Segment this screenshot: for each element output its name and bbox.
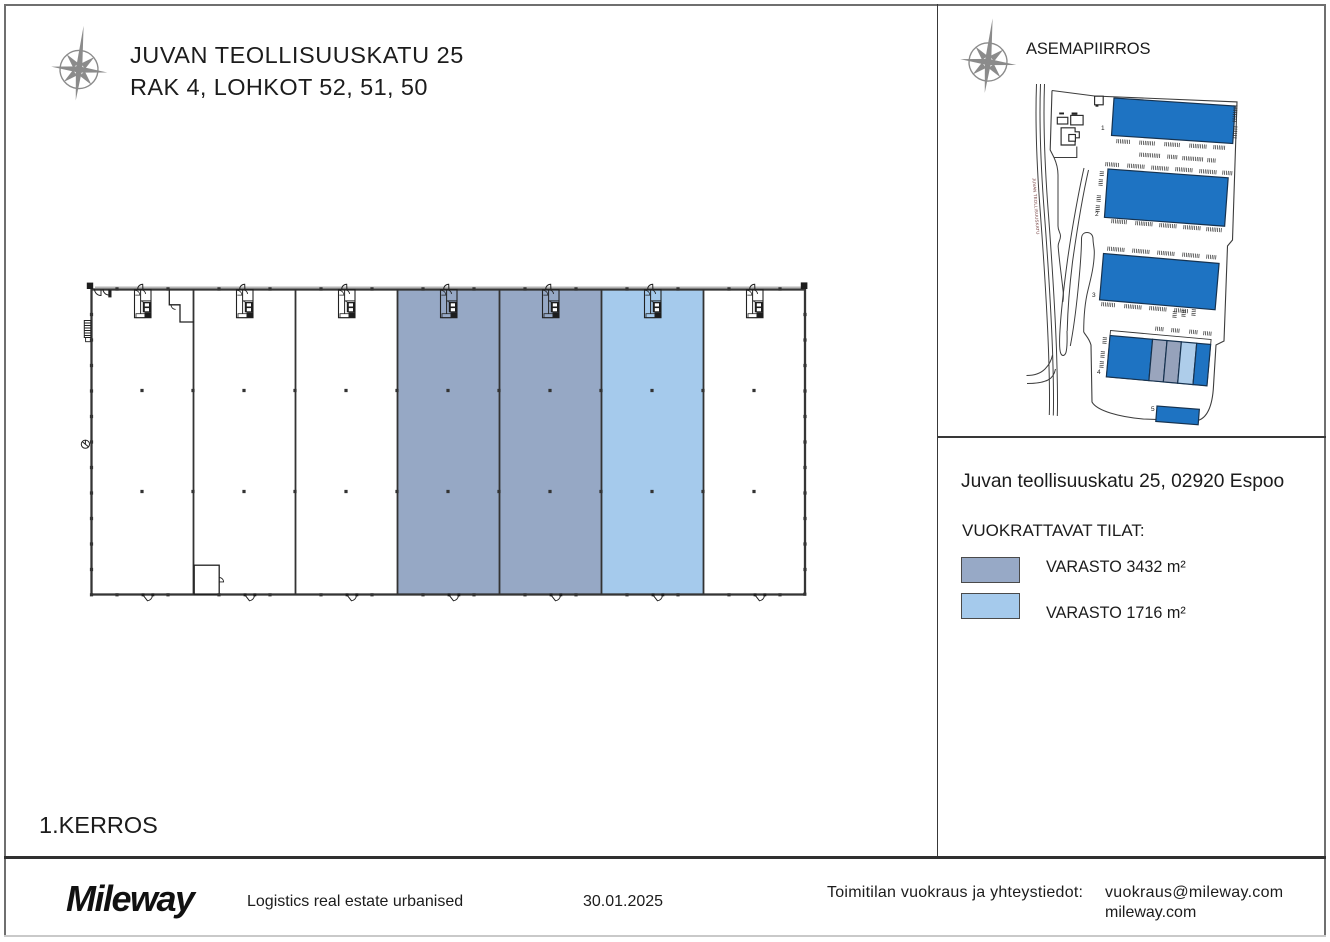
svg-text:4: 4 [1097, 369, 1101, 376]
svg-text:3: 3 [1092, 292, 1096, 299]
svg-text:2: 2 [1095, 211, 1099, 218]
svg-text:JUVAN TEOLLISUUSKATU: JUVAN TEOLLISUUSKATU [1032, 178, 1041, 235]
svg-text:1: 1 [1101, 125, 1105, 132]
svg-text:5: 5 [1151, 406, 1155, 413]
